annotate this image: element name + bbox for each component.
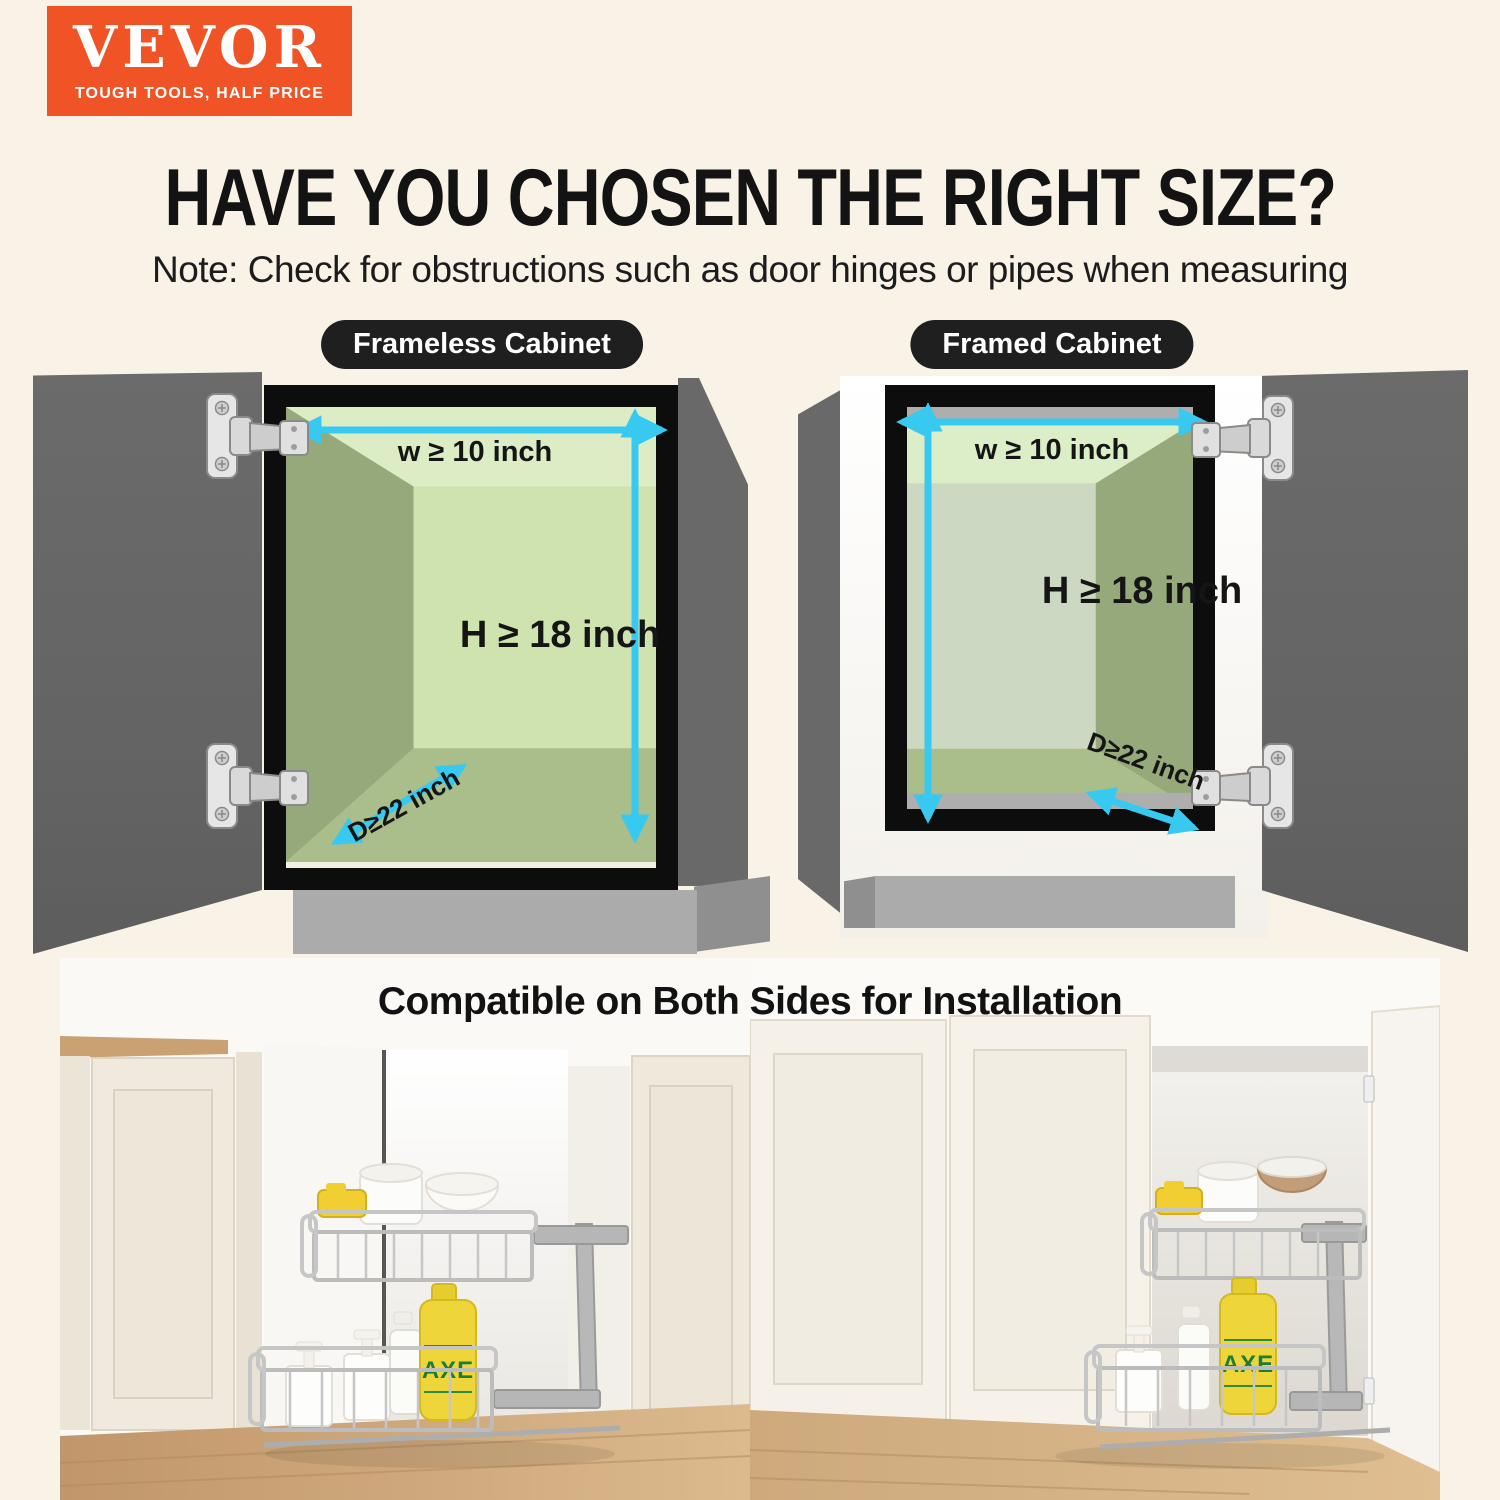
width-label: w ≥ 10 inch bbox=[365, 436, 585, 469]
product-infographic: VEVOR TOUGH TOOLS, HALF PRICE HAVE YOU C… bbox=[0, 0, 1500, 1500]
axe-brand-text: AXE bbox=[1222, 1351, 1274, 1378]
measuring-note: Note: Check for obstructions such as doo… bbox=[0, 249, 1500, 291]
cabinet-door bbox=[750, 1020, 946, 1428]
cabinet-stile bbox=[60, 1056, 90, 1430]
interior-bottom-edge bbox=[286, 862, 656, 868]
photos-heading: Compatible on Both Sides for Installatio… bbox=[0, 980, 1500, 1024]
cabinet-base-side bbox=[694, 876, 770, 952]
cabinet-side-panel bbox=[798, 388, 844, 916]
slide-rail bbox=[1290, 1392, 1362, 1410]
framed-cabinet-badge: Framed Cabinet bbox=[910, 320, 1193, 369]
height-label: H ≥ 18 inch bbox=[1022, 570, 1262, 613]
height-label: H ≥ 18 inch bbox=[440, 614, 680, 657]
axe-bottle: AXE bbox=[420, 1284, 476, 1420]
slide-rail bbox=[494, 1390, 600, 1408]
opened-door bbox=[1372, 1006, 1440, 1500]
door-hinge bbox=[1364, 1076, 1374, 1102]
cabinet-base-side bbox=[844, 876, 876, 928]
slide-rail bbox=[534, 1226, 628, 1244]
installation-photos: AXE bbox=[60, 958, 1440, 1500]
cabinet-door-open bbox=[1262, 370, 1468, 952]
slide-rail bbox=[1302, 1224, 1366, 1242]
page-title: HAVE YOU CHOSEN THE RIGHT SIZE? bbox=[0, 152, 1500, 245]
frameless-cabinet-diagram: w ≥ 10 inch H ≥ 18 inch D≥22 inch bbox=[30, 368, 760, 968]
brand-tagline: TOUGH TOOLS, HALF PRICE bbox=[75, 85, 324, 103]
vevor-logo: VEVOR TOUGH TOOLS, HALF PRICE bbox=[47, 6, 352, 116]
frameless-cabinet-badge: Frameless Cabinet bbox=[321, 320, 643, 369]
door-hinge bbox=[1364, 1378, 1374, 1404]
brand-name: VEVOR bbox=[73, 19, 326, 76]
framed-cabinet-diagram: w ≥ 10 inch H ≥ 18 inch D≥22 inch bbox=[760, 368, 1500, 968]
left-install-photo: AXE bbox=[60, 958, 750, 1500]
plate-stack bbox=[360, 1164, 422, 1224]
cabinet-side-panel bbox=[678, 378, 748, 886]
cabinet-door bbox=[92, 1058, 234, 1430]
width-label: w ≥ 10 inch bbox=[942, 434, 1162, 467]
right-install-photo: AXE bbox=[750, 958, 1440, 1500]
cabinet-base bbox=[875, 876, 1235, 928]
plate-stack bbox=[1198, 1162, 1258, 1222]
cabinet-door-open bbox=[33, 372, 262, 954]
cabinet-base bbox=[293, 890, 697, 954]
